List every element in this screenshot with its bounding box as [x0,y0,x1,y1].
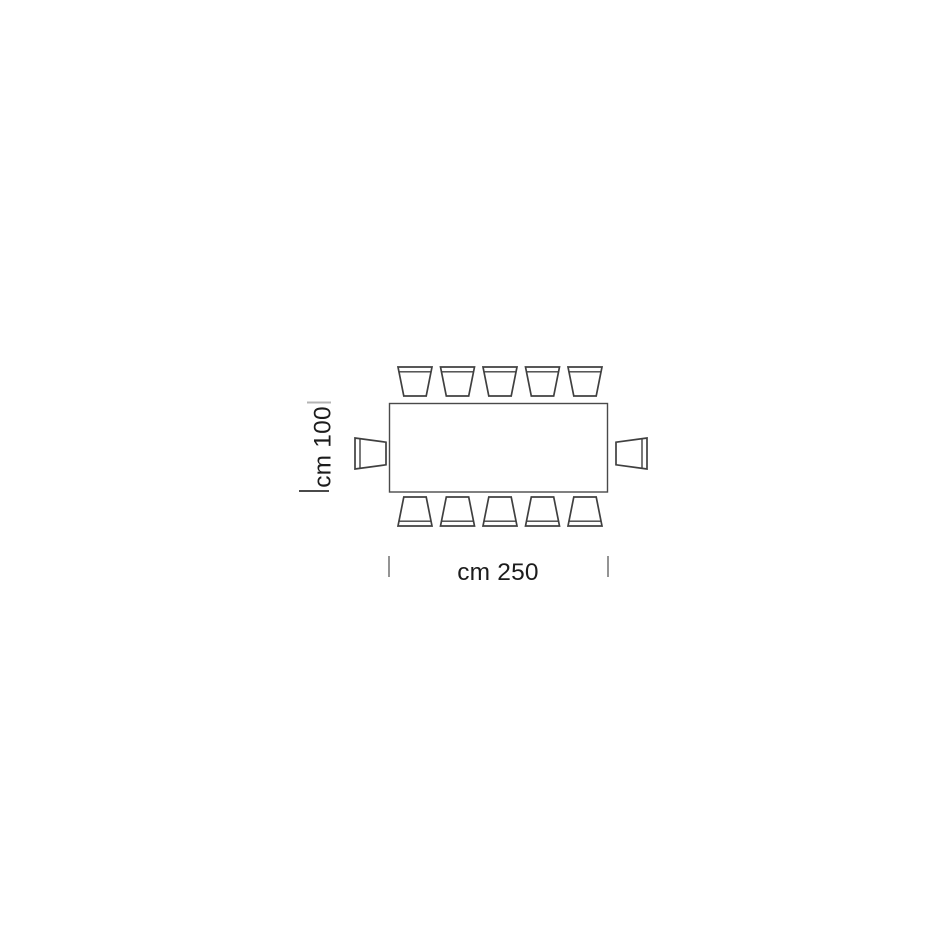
chair-bottom-3 [483,497,517,526]
depth-dimension-label: cm 100 [310,406,337,488]
chair-left-end [355,438,386,469]
chair-bottom-5 [568,497,602,526]
diagram-canvas: cm 100 cm 250 [0,0,950,950]
chair-bottom-4 [526,497,560,526]
chair-top-2 [441,367,475,396]
width-dimension-label: cm 250 [457,559,539,586]
chair-top-5 [568,367,602,396]
chair-top-4 [526,367,560,396]
chair-bottom-2 [441,497,475,526]
chair-bottom-1 [398,497,432,526]
chair-top-3 [483,367,517,396]
chair-top-1 [398,367,432,396]
table-top [390,404,608,493]
table-plan-diagram: cm 100 cm 250 [0,0,950,950]
chair-right-end [616,438,647,469]
